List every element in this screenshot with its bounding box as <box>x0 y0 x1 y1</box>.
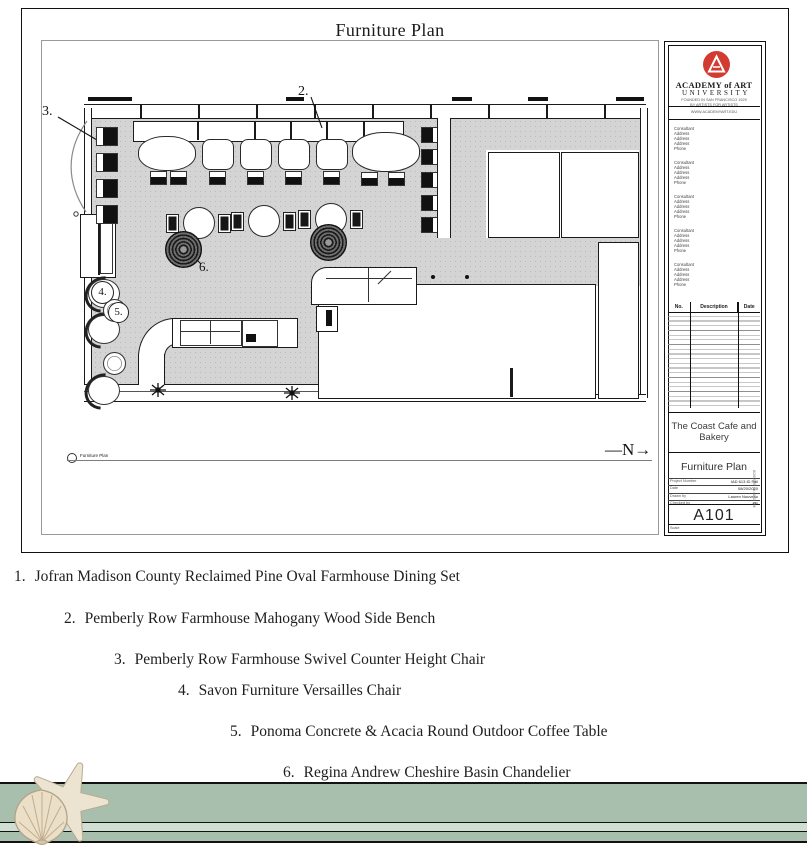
view-title-text: Furniture Plan <box>80 453 108 458</box>
university-website: WWW.ACADEMYART.EDU <box>668 110 760 114</box>
scale-row: Scale <box>668 524 760 531</box>
dining-table <box>316 139 348 170</box>
list-item: 1.Jofran Madison County Reclaimed Pine O… <box>14 568 460 586</box>
dining-table <box>240 139 272 170</box>
dining-chair <box>150 171 167 185</box>
versailles-chair <box>88 376 120 405</box>
consultant-block: ConsultantAddressAddressAddressPhone <box>674 262 758 287</box>
project-name: The Coast Cafe and Bakery <box>668 412 760 452</box>
university-tagline: FOUNDED IN SAN FRANCISCO 1929 <box>668 98 760 102</box>
roof-line <box>528 97 548 101</box>
consultant-block: ConsultantAddressAddressAddressPhone <box>674 228 758 253</box>
list-item: 3.Pemberly Row Farmhouse Swivel Counter … <box>114 651 485 669</box>
side-chair <box>350 210 363 229</box>
university-logo-icon <box>703 51 730 78</box>
farmhouse-oval-table <box>138 136 196 171</box>
basin-chandelier <box>165 231 202 268</box>
consultant-blocks: ConsultantAddressAddressAddressPhoneCons… <box>674 126 758 296</box>
list-item: 6.Regina Andrew Cheshire Basin Chandelie… <box>283 764 571 782</box>
list-text: Pemberly Row Farmhouse Swivel Counter He… <box>135 651 485 668</box>
consultant-block: ConsultantAddressAddressAddressPhone <box>674 160 758 185</box>
field-row: Date08/20/2020 <box>668 485 760 492</box>
list-number: 2. <box>64 610 76 627</box>
bench-divider <box>326 122 328 140</box>
counter-ledge <box>437 118 451 238</box>
sheet-number: A101 <box>668 504 760 525</box>
view-title-bubble <box>67 453 77 463</box>
side-chair <box>218 214 231 233</box>
field-row: Project NumberIAD 613 ID Fall <box>668 478 760 485</box>
counter-height-chair <box>96 127 118 146</box>
starfish-shell-decoration <box>6 758 146 847</box>
list-text: Savon Furniture Versailles Chair <box>199 682 401 699</box>
dining-chair <box>209 171 226 185</box>
field-row: Drawn byLauren Nouveau <box>668 493 760 500</box>
list-text: Ponoma Concrete & Acacia Round Outdoor C… <box>251 723 608 740</box>
dining-chair <box>285 171 302 185</box>
list-number: 3. <box>114 651 126 668</box>
consultant-block: ConsultantAddressAddressAddressPhone <box>674 194 758 219</box>
field-label: Project Number <box>670 479 696 485</box>
dining-table <box>202 139 234 170</box>
revision-table-line <box>738 302 739 408</box>
dining-chair <box>323 171 340 185</box>
side-chair <box>298 210 311 229</box>
dining-chair <box>247 171 264 185</box>
list-number: 5. <box>230 723 242 740</box>
roof-line <box>88 97 132 101</box>
farmhouse-oval-table <box>352 132 420 172</box>
bench-divider <box>197 122 199 140</box>
list-number: 6. <box>283 764 295 781</box>
revision-col-date: Date <box>738 302 760 312</box>
round-coffee-table <box>103 352 126 375</box>
university-name-2: UNIVERSITY <box>668 89 762 97</box>
north-arrow: —N→ <box>605 440 651 460</box>
sheet-name: Furniture Plan <box>668 452 760 479</box>
basin-chandelier <box>310 224 347 261</box>
scallop-shell-icon <box>15 790 67 845</box>
revision-table-line <box>690 302 691 408</box>
list-text: Pemberly Row Farmhouse Mahogany Wood Sid… <box>85 610 436 627</box>
view-title-line <box>67 460 652 461</box>
list-text: Jofran Madison County Reclaimed Pine Ova… <box>35 568 460 585</box>
revision-col-description: Description <box>690 302 739 312</box>
callout-4-versailles-chair: 4. <box>91 281 114 304</box>
roof-line <box>616 97 644 101</box>
side-chair <box>166 214 179 233</box>
callout-5-coffee-table: 5. <box>108 302 129 323</box>
consultant-block: ConsultantAddressAddressAddressPhone <box>674 126 758 151</box>
dining-chair <box>388 172 405 186</box>
project-fields: Project NumberIAD 613 ID Fall Date08/20/… <box>668 478 760 507</box>
list-text: Regina Andrew Cheshire Basin Chandelier <box>304 764 571 781</box>
bench-divider <box>290 122 292 140</box>
field-label: Drawn by <box>670 494 686 500</box>
bench-divider <box>254 122 256 140</box>
list-item: 4.Savon Furniture Versailles Chair <box>178 682 401 700</box>
revision-col-no: No. <box>668 302 690 312</box>
roof-line <box>452 97 472 101</box>
counter-height-chair <box>96 205 118 224</box>
dining-table <box>278 139 310 170</box>
plot-timestamp: 8/20/2020 10:48:43 PM <box>752 470 756 507</box>
round-dining-table <box>248 205 280 237</box>
list-item: 2.Pemberly Row Farmhouse Mahogany Wood S… <box>64 610 435 628</box>
side-chair <box>231 212 244 231</box>
revision-table-rows <box>668 312 760 408</box>
page: Furniture Plan <box>0 0 807 847</box>
list-item: 5.Ponoma Concrete & Acacia Round Outdoor… <box>230 723 608 741</box>
counter-height-chair <box>96 153 118 172</box>
dining-chair <box>170 171 187 185</box>
list-number: 1. <box>14 568 26 585</box>
dining-chair <box>361 172 378 186</box>
roof-line <box>286 97 304 101</box>
side-chair <box>283 212 296 231</box>
counter-height-chair <box>96 179 118 198</box>
list-number: 4. <box>178 682 190 699</box>
field-label: Date <box>670 486 678 492</box>
